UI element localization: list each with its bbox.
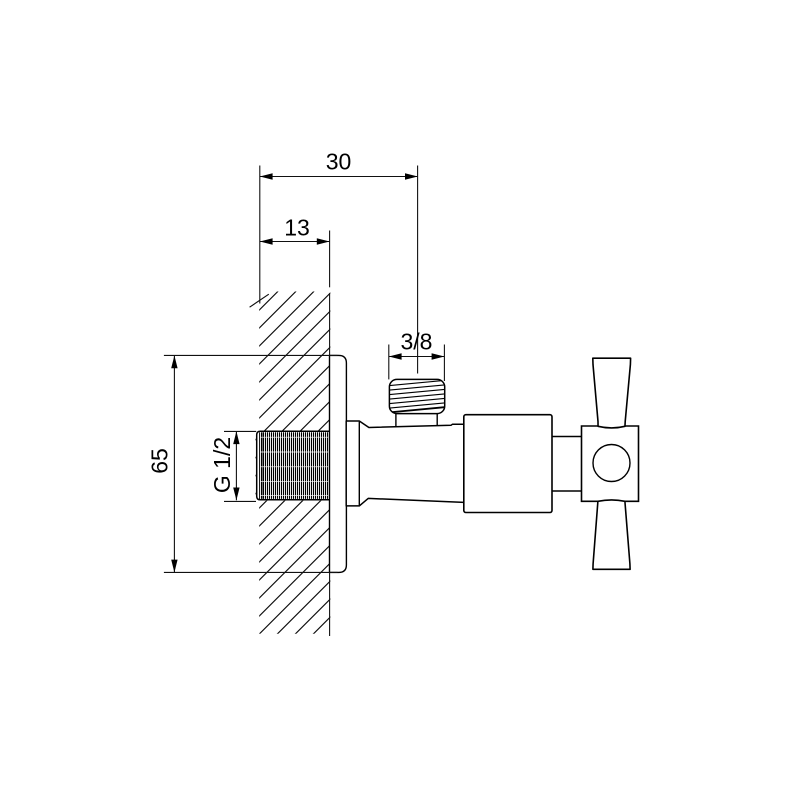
svg-text:30: 30 bbox=[326, 149, 352, 175]
svg-text:13: 13 bbox=[284, 215, 310, 241]
svg-text:65: 65 bbox=[146, 448, 172, 474]
svg-text:3/8: 3/8 bbox=[401, 329, 433, 355]
svg-text:G 1/2: G 1/2 bbox=[209, 437, 235, 493]
